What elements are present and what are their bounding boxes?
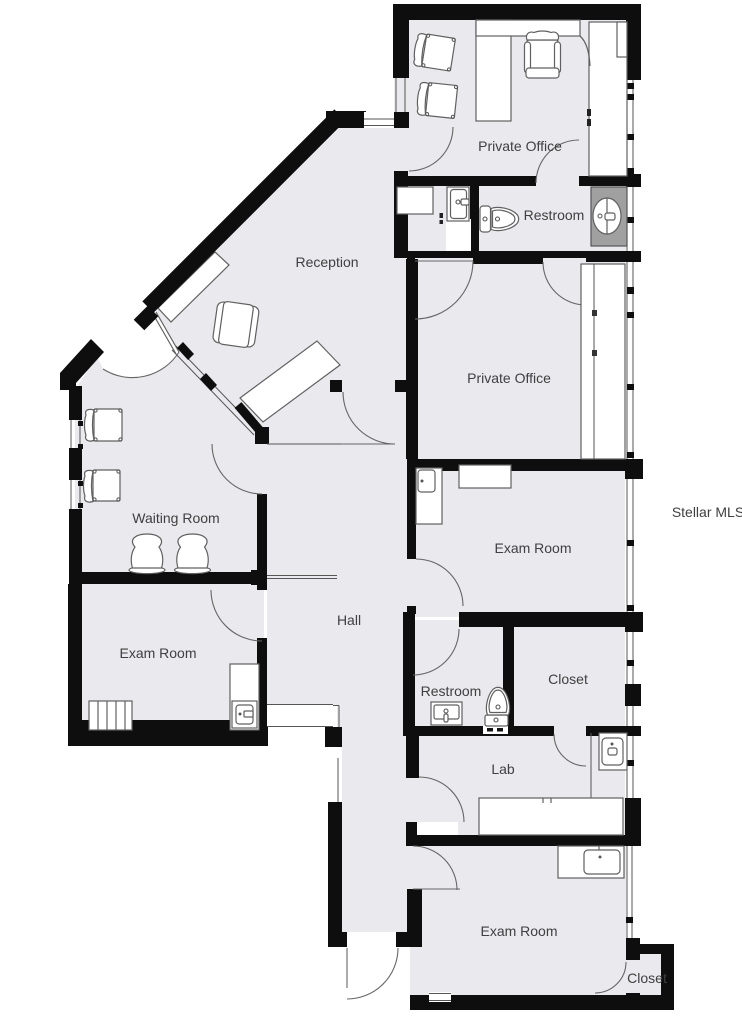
svg-text:Exam Room: Exam Room: [494, 540, 571, 556]
svg-text:Closet: Closet: [627, 970, 667, 986]
svg-text:Restroom: Restroom: [421, 683, 482, 699]
svg-text:Hall: Hall: [337, 612, 361, 628]
svg-text:Exam Room: Exam Room: [480, 923, 557, 939]
svg-text:Stellar MLS: Stellar MLS: [672, 504, 742, 520]
svg-text:Reception: Reception: [295, 254, 358, 270]
svg-text:Private Office: Private Office: [467, 370, 551, 386]
svg-text:Waiting Room: Waiting Room: [132, 510, 219, 526]
svg-text:Private Office: Private Office: [478, 138, 562, 154]
svg-text:Lab: Lab: [491, 761, 515, 777]
svg-text:Restroom: Restroom: [524, 207, 585, 223]
svg-text:Exam Room: Exam Room: [119, 645, 196, 661]
svg-text:Closet: Closet: [548, 671, 588, 687]
